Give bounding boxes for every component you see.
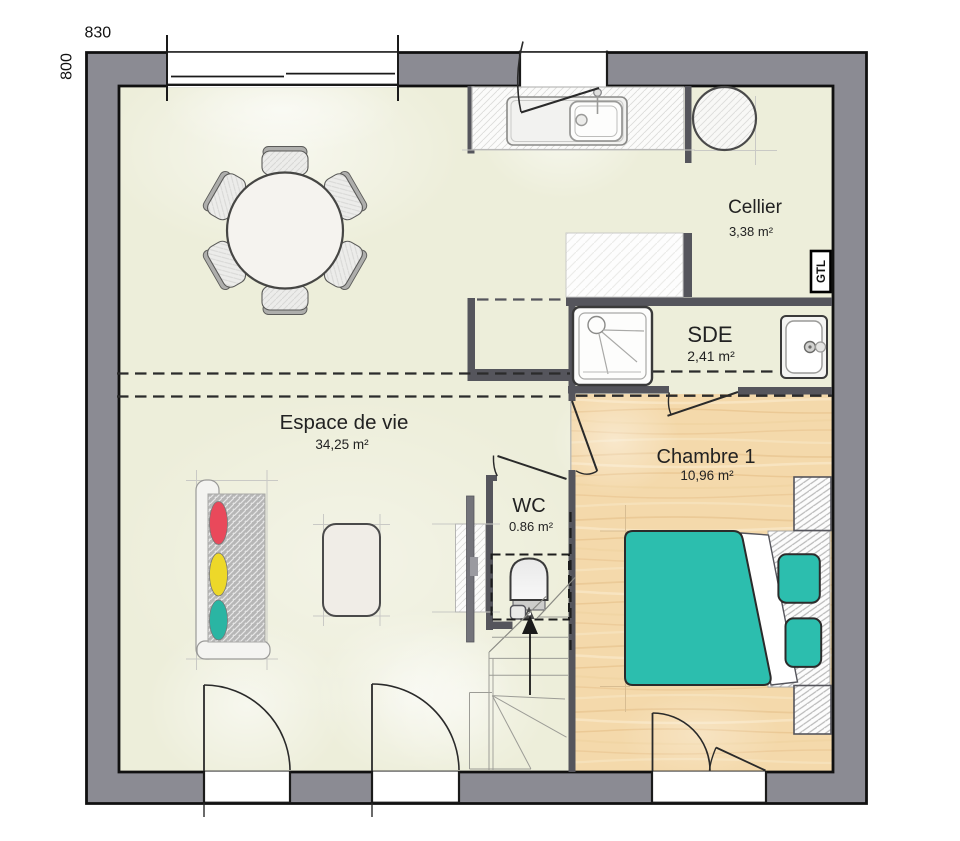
svg-text:34,25 m²: 34,25 m² <box>315 437 369 452</box>
svg-text:830: 830 <box>85 25 112 42</box>
svg-text:SDE: SDE <box>687 322 732 347</box>
svg-text:GTL: GTL <box>816 260 828 283</box>
svg-text:Chambre 1: Chambre 1 <box>657 446 756 468</box>
svg-text:WC: WC <box>512 495 545 517</box>
svg-text:800: 800 <box>59 53 76 80</box>
svg-text:10,96 m²: 10,96 m² <box>680 468 734 483</box>
svg-text:Cellier: Cellier <box>728 197 783 218</box>
svg-text:2,41 m²: 2,41 m² <box>687 348 735 364</box>
svg-text:0.86 m²: 0.86 m² <box>509 519 554 534</box>
svg-text:Espace de vie: Espace de vie <box>280 411 409 434</box>
svg-text:3,38 m²: 3,38 m² <box>729 224 774 239</box>
